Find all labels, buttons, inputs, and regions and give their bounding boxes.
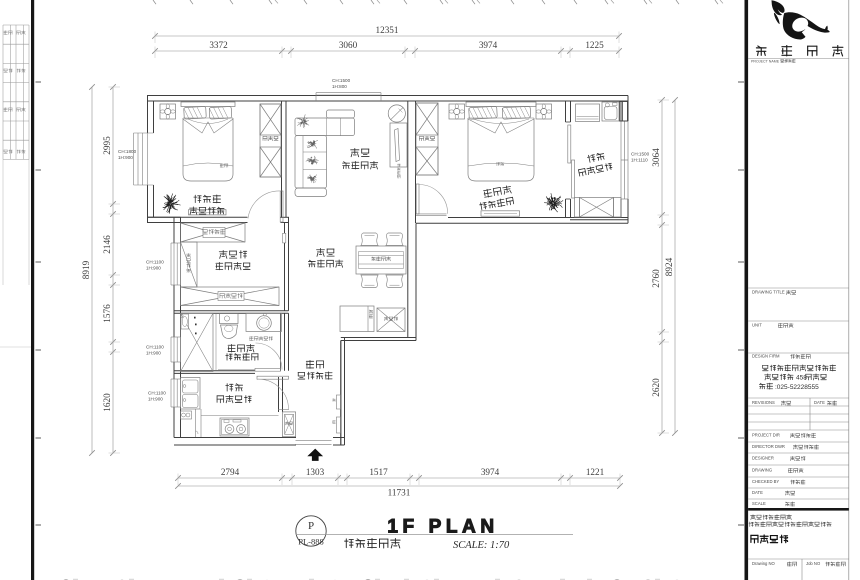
svg-text:REVISIONS: REVISIONS: [752, 400, 775, 405]
svg-text:DIRECTOR DWR: DIRECTOR DWR: [752, 444, 785, 449]
svg-text:3064: 3064: [651, 148, 661, 167]
svg-text:DRAWING: DRAWING: [752, 468, 772, 473]
svg-text:Drawing NO: Drawing NO: [752, 561, 776, 566]
svg-text:CH:1500: CH:1500: [631, 152, 650, 157]
svg-text:2760: 2760: [651, 269, 661, 288]
svg-text:CHECKED BY: CHECKED BY: [752, 479, 779, 484]
svg-text:1F PLAN: 1F PLAN: [387, 517, 498, 538]
svg-text:12351: 12351: [376, 25, 399, 35]
svg-text:Job NO: Job NO: [806, 561, 821, 566]
svg-text:3372: 3372: [209, 40, 228, 50]
svg-text:1H:900: 1H:900: [146, 266, 161, 271]
svg-text:3060: 3060: [339, 40, 358, 50]
svg-text:DATE: DATE: [752, 490, 763, 495]
svg-text:CH:1100: CH:1100: [146, 345, 164, 350]
svg-text:2620: 2620: [651, 378, 661, 397]
svg-text:2146: 2146: [102, 235, 112, 254]
svg-text:2995: 2995: [102, 136, 112, 155]
svg-text::: :: [786, 534, 789, 544]
svg-text:8919: 8919: [81, 260, 91, 279]
svg-text:11731: 11731: [388, 488, 411, 498]
svg-text:1H:800: 1H:800: [332, 84, 347, 89]
svg-text:1221: 1221: [586, 467, 605, 477]
svg-text:1H:900: 1H:900: [146, 351, 161, 356]
svg-text:1H:1110: 1H:1110: [631, 158, 648, 163]
svg-text:1576: 1576: [102, 304, 112, 323]
svg-text:1225: 1225: [585, 40, 604, 50]
svg-text:SCALE: SCALE: [752, 501, 766, 506]
svg-text:DESIGNER: DESIGNER: [752, 456, 774, 461]
svg-text:1H:900: 1H:900: [148, 397, 163, 402]
svg-text:SCALE: 1:70: SCALE: 1:70: [453, 540, 510, 551]
svg-text:1H:900: 1H:900: [118, 155, 133, 160]
svg-text:DRAWING TITLE: DRAWING TITLE: [752, 290, 785, 295]
svg-text:8924: 8924: [664, 257, 674, 276]
svg-text:1303: 1303: [306, 467, 325, 477]
svg-text:PROJECT DIR: PROJECT DIR: [752, 433, 780, 438]
svg-text:3974: 3974: [481, 467, 500, 477]
svg-text:DATE: DATE: [814, 400, 825, 405]
svg-text:CH:1500: CH:1500: [332, 78, 351, 83]
svg-text::025-52228555: :025-52228555: [775, 384, 819, 391]
svg-text:CH:1100: CH:1100: [146, 260, 164, 265]
svg-text:P: P: [308, 520, 314, 532]
svg-text:CH:1100: CH:1100: [148, 391, 166, 396]
svg-text:PL-888: PL-888: [298, 537, 324, 547]
svg-text:2794: 2794: [221, 467, 240, 477]
svg-text:UNIT: UNIT: [752, 323, 762, 328]
svg-text:3974: 3974: [479, 40, 498, 50]
svg-text:1517: 1517: [369, 467, 388, 477]
svg-text:1620: 1620: [102, 393, 112, 412]
svg-text:DESIGN FIRM: DESIGN FIRM: [752, 354, 780, 359]
